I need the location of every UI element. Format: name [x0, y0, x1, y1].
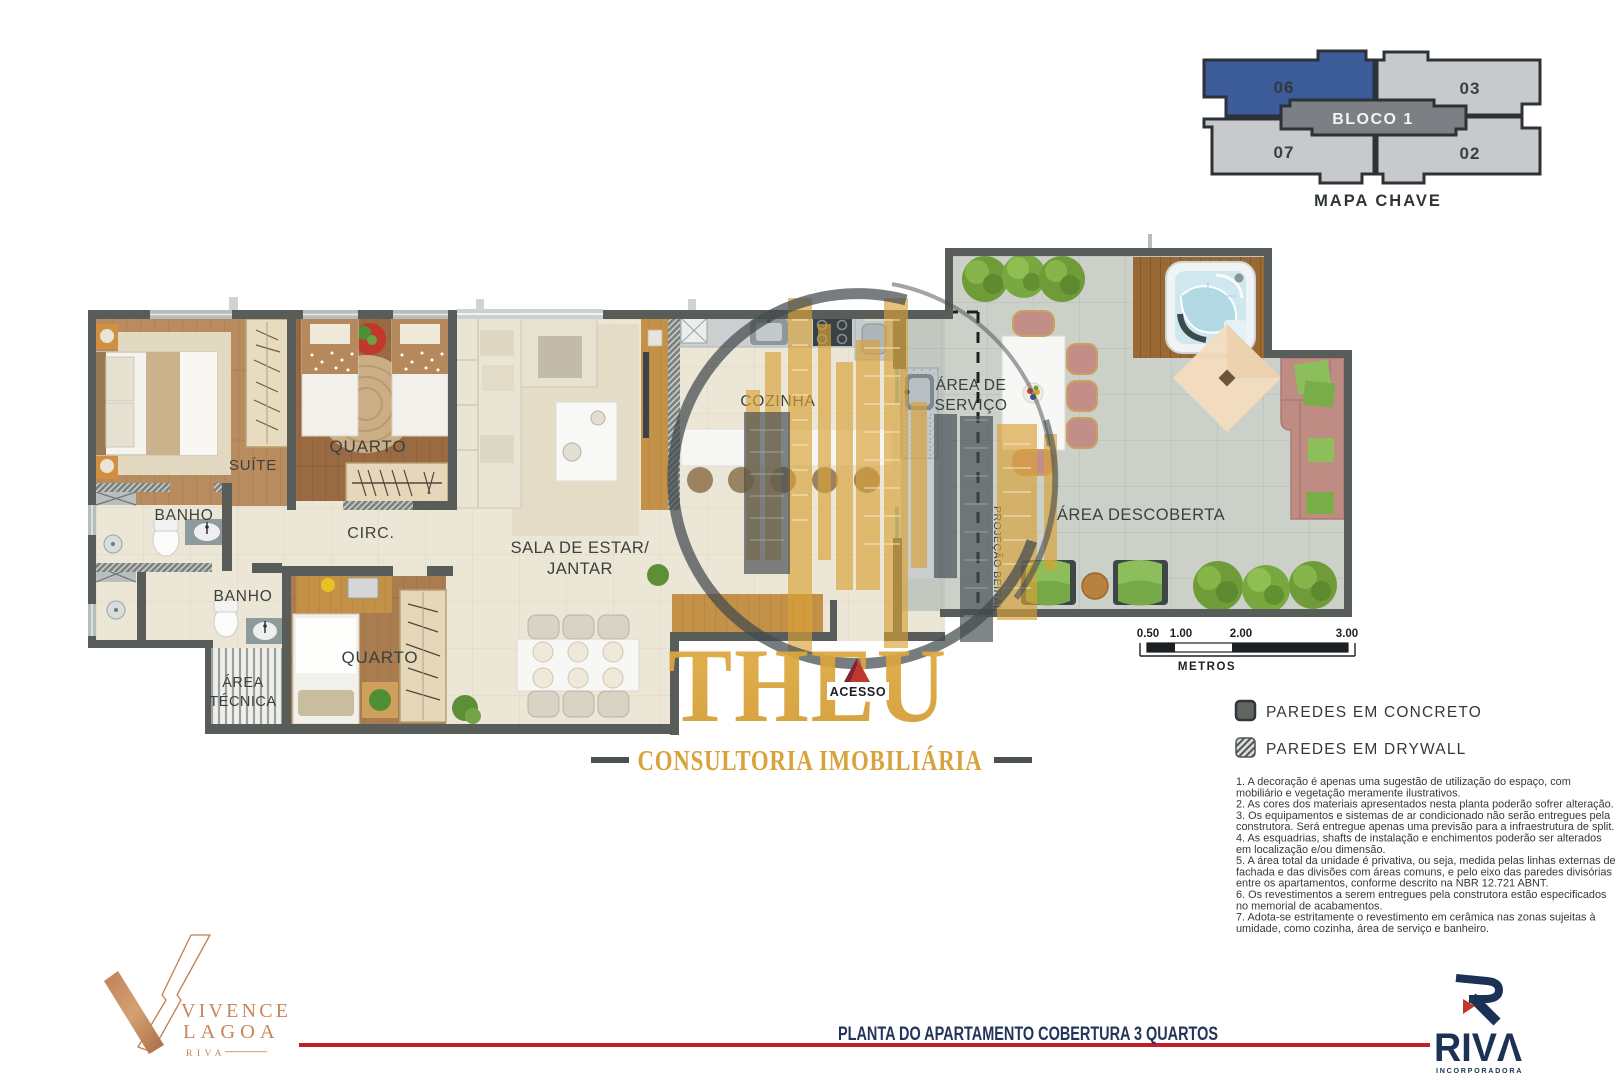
svg-text:6. Os revestimentos a serem en: 6. Os revestimentos a serem entregues pe…: [1236, 889, 1607, 901]
svg-text:2.00: 2.00: [1230, 628, 1252, 640]
svg-text:mobiliário e vegetação meramen: mobiliário e vegetação meramente ilustra…: [1236, 787, 1461, 799]
svg-text:4. As esquadrias, shafts de in: 4. As esquadrias, shafts de instalação e…: [1236, 833, 1602, 845]
svg-text:INCORPORADORA: INCORPORADORA: [1436, 1066, 1523, 1075]
svg-text:ÁREA DE: ÁREA DE: [936, 377, 1007, 394]
svg-text:ÁREA: ÁREA: [222, 674, 264, 691]
svg-text:PAREDES EM CONCRETO: PAREDES EM CONCRETO: [1266, 704, 1482, 721]
svg-text:2. As cores dos materiais apre: 2. As cores dos materiais apresentados n…: [1236, 799, 1614, 811]
svg-text:no memorial de acabamentos.: no memorial de acabamentos.: [1236, 900, 1383, 912]
svg-text:06: 06: [1274, 78, 1295, 97]
svg-text:1.00: 1.00: [1170, 628, 1192, 640]
svg-text:1. A decoração é apenas uma su: 1. A decoração é apenas uma sugestão de …: [1236, 776, 1571, 788]
svg-text:RIVΛ: RIVΛ: [1434, 1026, 1522, 1070]
svg-text:THEU: THEU: [668, 627, 948, 744]
svg-text:3.00: 3.00: [1336, 628, 1358, 640]
svg-text:3. Os equipamentos e sistemas: 3. Os equipamentos e sistemas de ar cond…: [1236, 810, 1611, 822]
svg-text:ÁREA DESCOBERTA: ÁREA DESCOBERTA: [1057, 505, 1225, 524]
svg-text:em localização e/ou dimensão.: em localização e/ou dimensão.: [1236, 844, 1386, 856]
svg-text:CONSULTORIA IMOBILIÁRIA: CONSULTORIA IMOBILIÁRIA: [638, 746, 983, 777]
svg-text:03: 03: [1460, 79, 1481, 98]
svg-text:RIVA: RIVA: [186, 1049, 226, 1059]
svg-text:VIVENCE: VIVENCE: [181, 1000, 291, 1022]
svg-text:BANHO: BANHO: [213, 588, 272, 605]
svg-text:QUARTO: QUARTO: [342, 648, 419, 667]
svg-text:QUARTO: QUARTO: [330, 437, 407, 456]
svg-text:CIRC.: CIRC.: [347, 525, 395, 542]
svg-text:SUÍTE: SUÍTE: [229, 457, 277, 474]
svg-text:TÉCNICA: TÉCNICA: [209, 693, 276, 710]
svg-text:entre os apartamentos, conform: entre os apartamentos, conforme descrito…: [1236, 878, 1548, 890]
svg-text:JANTAR: JANTAR: [547, 560, 613, 578]
svg-text:fachada e das divisões com áre: fachada e das divisões com áreas comuns,…: [1236, 866, 1612, 878]
svg-text:0.50: 0.50: [1137, 628, 1159, 640]
svg-text:umidade, como cozinha, área de: umidade, como cozinha, área de serviço e…: [1236, 923, 1489, 935]
svg-text:METROS: METROS: [1178, 661, 1236, 673]
svg-text:MAPA CHAVE: MAPA CHAVE: [1314, 192, 1442, 210]
svg-text:LAGOA: LAGOA: [183, 1021, 280, 1043]
svg-text:construtora. Será entregue ape: construtora. Será entregue apenas uma pr…: [1236, 821, 1614, 833]
svg-text:PAREDES EM DRYWALL: PAREDES EM DRYWALL: [1266, 741, 1466, 758]
svg-text:SALA DE ESTAR/: SALA DE ESTAR/: [511, 539, 650, 557]
svg-text:07: 07: [1274, 143, 1295, 162]
svg-text:5. A área total da unidade é p: 5. A área total da unidade é privativa, …: [1236, 855, 1616, 867]
svg-text:SERVIÇO: SERVIÇO: [935, 397, 1008, 414]
svg-text:BLOCO 1: BLOCO 1: [1332, 111, 1414, 128]
svg-text:ACESSO: ACESSO: [830, 685, 886, 699]
svg-text:BANHO: BANHO: [154, 507, 213, 524]
svg-text:7. Adota-se estritamente o rev: 7. Adota-se estritamente o revestimento …: [1236, 912, 1597, 924]
svg-text:02: 02: [1460, 144, 1481, 163]
svg-text:PLANTA DO APARTAMENTO COBERTUR: PLANTA DO APARTAMENTO COBERTURA 3 QUARTO…: [838, 1024, 1218, 1045]
